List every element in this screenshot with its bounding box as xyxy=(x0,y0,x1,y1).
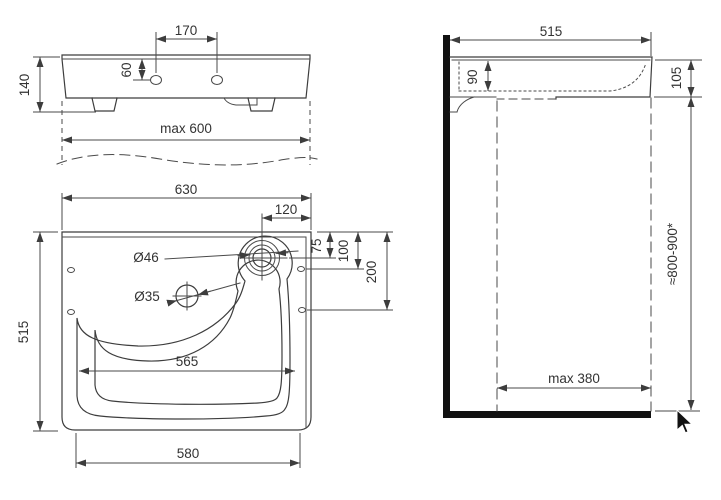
dim-label-overall-width: 630 xyxy=(175,182,198,197)
bowl-hidden-line xyxy=(459,62,646,91)
mouse-cursor-icon xyxy=(677,410,692,433)
faucet-hole-right xyxy=(212,76,223,85)
clearance-boundary xyxy=(497,98,651,411)
mounting-bracket-left xyxy=(92,98,117,111)
drain-outline xyxy=(224,98,257,105)
dim-label-tap-offset: 120 xyxy=(275,202,298,217)
dim-label-install-height: ≈800-900* xyxy=(665,222,680,285)
dim-label-hole-spacing: 170 xyxy=(175,23,198,38)
dim-label-base-width: 580 xyxy=(177,446,200,461)
dim-label-knee-clearance: max 380 xyxy=(548,371,600,386)
bowl-rim-outline xyxy=(77,236,292,419)
leader-arrow xyxy=(168,301,177,304)
leader-arrow xyxy=(276,253,288,254)
break-line xyxy=(57,155,317,165)
mounting-hole xyxy=(68,310,75,315)
dim-label-aux-hole-dia: Ø35 xyxy=(134,289,160,304)
dim-label-bowl-width: 565 xyxy=(176,354,199,369)
mounting-hole xyxy=(298,267,305,272)
basin-rim-edge xyxy=(62,237,306,428)
wall-section xyxy=(443,35,450,418)
centerline xyxy=(240,214,287,280)
dim-label-overall-depth: 515 xyxy=(16,321,31,344)
mounting-hole xyxy=(299,308,306,313)
dim-label-hole2-from-edge: 200 xyxy=(364,261,379,284)
basin-profile xyxy=(450,57,652,99)
leader-arrow xyxy=(198,291,210,294)
extension-line xyxy=(33,232,58,431)
front-view: 170 60 140 max 600 xyxy=(17,23,317,165)
extension-line xyxy=(156,32,217,73)
dim-label-bowl-depth: 90 xyxy=(465,69,480,84)
dim-label-depth-side: 515 xyxy=(540,24,563,39)
basin-body-outline xyxy=(62,55,310,98)
side-view: 515 90 105 ≈800-900* max 380 xyxy=(443,24,702,418)
faucet-hole-left xyxy=(151,76,162,85)
floor-section xyxy=(443,411,651,418)
washbasin-technical-drawing: 170 60 140 max 600 xyxy=(0,0,721,500)
dim-label-max-width: max 600 xyxy=(160,121,212,136)
dim-label-tap-from-edge: 75 xyxy=(309,238,324,253)
dim-label-tap-hole-dia: Ø46 xyxy=(133,250,159,265)
trap-cover-outline xyxy=(450,97,496,112)
top-view: Ø46 Ø35 630 120 515 75 100 200 565 xyxy=(16,182,393,468)
extension-line xyxy=(62,193,311,230)
mounting-hole xyxy=(68,268,75,273)
leader-arrow xyxy=(238,255,250,256)
centerline xyxy=(173,282,201,310)
dim-label-body-height: 140 xyxy=(17,74,32,97)
dim-label-hole-offset: 60 xyxy=(119,62,134,77)
drawing-page: 170 60 140 max 600 xyxy=(0,0,721,500)
bowl-bottom-outline xyxy=(95,260,282,404)
dim-label-front-height: 105 xyxy=(669,67,684,90)
dim-label-hole1-from-edge: 100 xyxy=(336,240,351,263)
